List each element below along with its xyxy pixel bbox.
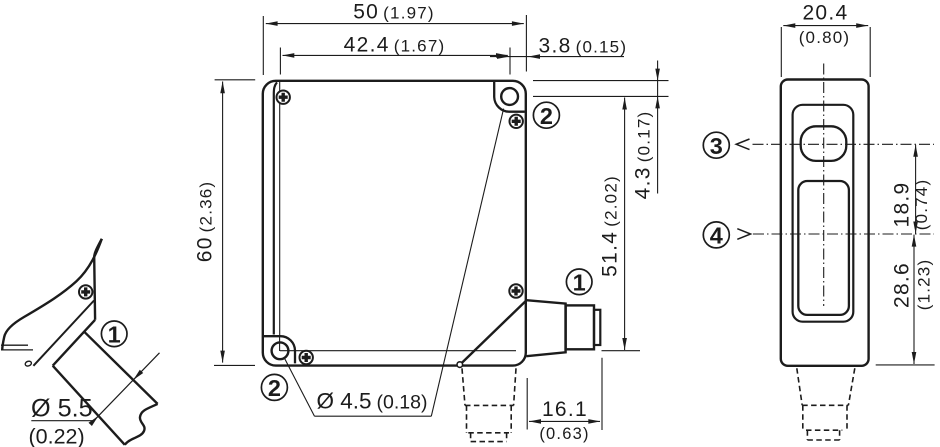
svg-text:Ø 5.5: Ø 5.5 <box>31 395 93 423</box>
svg-text:1: 1 <box>108 322 121 348</box>
svg-text:50(1.97): 50(1.97) <box>353 1 435 24</box>
svg-text:60(2.36): 60(2.36) <box>194 181 217 263</box>
svg-text:(0.74): (0.74) <box>912 179 931 231</box>
svg-text:2: 2 <box>540 103 553 129</box>
svg-text:3.8(0.15): 3.8(0.15) <box>539 34 628 57</box>
svg-text:4.3(0.17): 4.3(0.17) <box>632 111 655 200</box>
svg-text:(0.63): (0.63) <box>539 425 589 443</box>
svg-text:(0.80): (0.80) <box>799 28 851 47</box>
svg-text:1: 1 <box>573 270 586 296</box>
svg-text:(0.22): (0.22) <box>29 424 85 447</box>
svg-text:16.1: 16.1 <box>542 398 588 421</box>
svg-text:18.9: 18.9 <box>890 181 913 227</box>
svg-text:42.4(1.67): 42.4(1.67) <box>344 33 446 56</box>
svg-text:28.6: 28.6 <box>890 262 913 308</box>
svg-text:4: 4 <box>710 223 723 249</box>
svg-text:2: 2 <box>268 375 281 401</box>
svg-text:3: 3 <box>710 133 723 159</box>
svg-text:Ø 4.5: Ø 4.5 <box>317 389 372 414</box>
svg-text:20.4: 20.4 <box>802 1 848 24</box>
svg-text:51.4(2.02): 51.4(2.02) <box>599 175 622 277</box>
svg-text:(1.23): (1.23) <box>915 259 934 311</box>
svg-text:(0.18): (0.18) <box>377 392 428 414</box>
